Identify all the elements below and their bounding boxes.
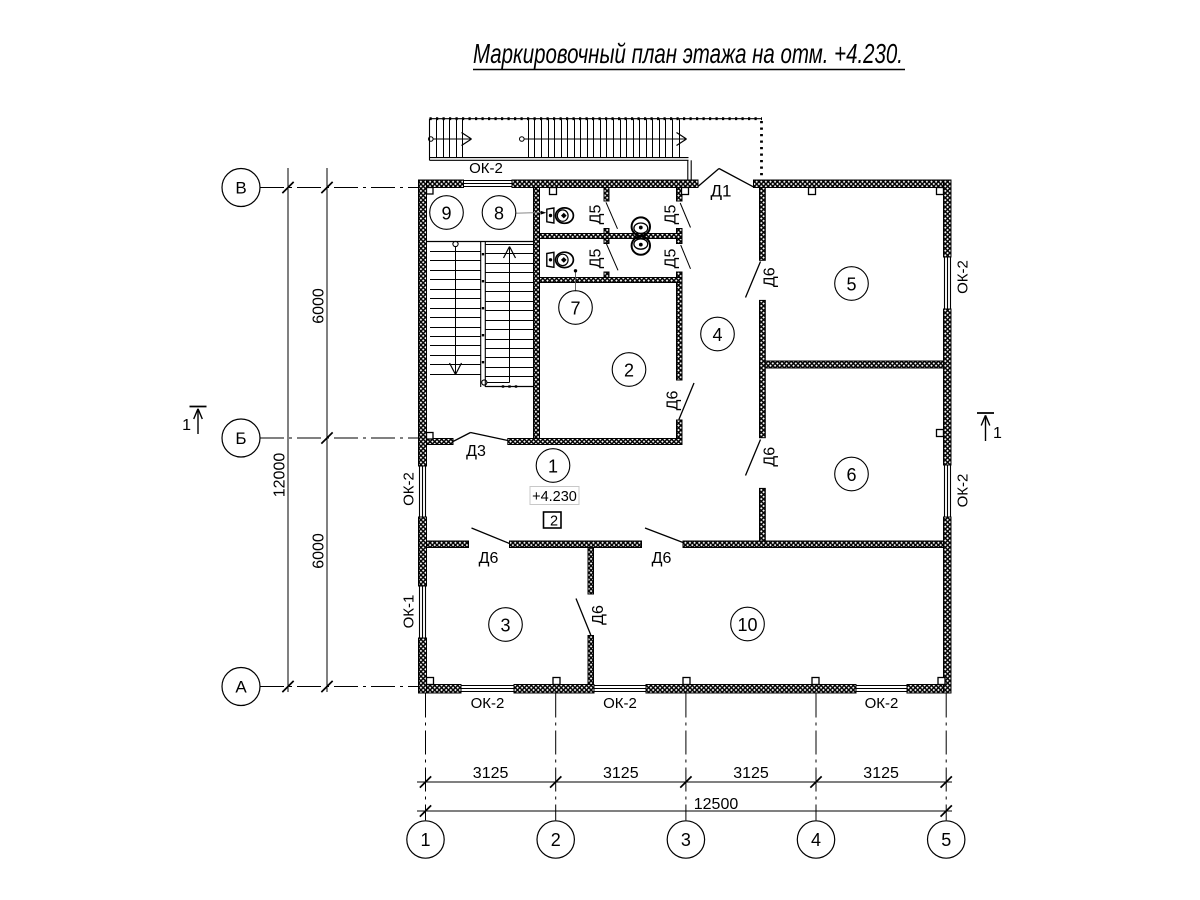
svg-text:Маркировочный план этажа на от: Маркировочный план этажа на отм. +4.230. (473, 38, 903, 69)
svg-text:3: 3 (681, 830, 691, 850)
svg-text:10: 10 (737, 615, 757, 635)
svg-text:Д6: Д6 (762, 447, 779, 467)
svg-text:2: 2 (550, 513, 558, 529)
svg-text:6000: 6000 (311, 533, 328, 569)
svg-text:1: 1 (993, 425, 1002, 442)
svg-text:12000: 12000 (272, 453, 289, 498)
svg-text:3125: 3125 (733, 765, 769, 782)
svg-text:ОК-2: ОК-2 (400, 472, 417, 506)
svg-text:ОК-2: ОК-2 (865, 695, 899, 712)
svg-text:Д6: Д6 (479, 550, 499, 567)
svg-text:1: 1 (420, 830, 430, 850)
svg-text:6000: 6000 (311, 288, 328, 324)
svg-text:3: 3 (500, 615, 510, 635)
svg-text:5: 5 (941, 830, 951, 850)
svg-text:ОК-2: ОК-2 (603, 695, 637, 712)
svg-text:Д5: Д5 (663, 249, 680, 269)
svg-text:ОК-2: ОК-2 (954, 474, 971, 508)
svg-text:Д6: Д6 (652, 550, 672, 567)
svg-text:4: 4 (712, 325, 722, 345)
svg-text:ОК-1: ОК-1 (400, 595, 417, 629)
svg-text:1: 1 (548, 456, 558, 476)
svg-text:1: 1 (182, 417, 191, 434)
svg-text:4: 4 (811, 830, 821, 850)
svg-text:В: В (235, 179, 246, 198)
svg-text:12500: 12500 (694, 796, 739, 813)
svg-text:Д3: Д3 (466, 443, 486, 460)
svg-text:7: 7 (570, 298, 580, 318)
svg-text:ОК-2: ОК-2 (471, 695, 505, 712)
svg-text:3125: 3125 (603, 765, 639, 782)
svg-text:Д5: Д5 (588, 205, 605, 225)
svg-text:ОК-2: ОК-2 (954, 260, 971, 294)
svg-text:Д1: Д1 (711, 182, 732, 201)
svg-text:2: 2 (624, 360, 634, 380)
svg-text:8: 8 (494, 203, 504, 223)
svg-text:9: 9 (441, 203, 451, 223)
svg-text:Д6: Д6 (590, 605, 607, 625)
svg-text:2: 2 (551, 830, 561, 850)
svg-text:+4.230: +4.230 (532, 489, 577, 505)
svg-text:ОК-2: ОК-2 (469, 160, 503, 177)
svg-text:5: 5 (846, 274, 856, 294)
svg-text:6: 6 (846, 465, 856, 485)
svg-text:А: А (235, 678, 247, 697)
svg-text:Д5: Д5 (588, 249, 605, 269)
svg-text:Д6: Д6 (762, 267, 779, 287)
svg-text:Б: Б (235, 429, 246, 448)
svg-text:3125: 3125 (473, 765, 509, 782)
svg-text:Д5: Д5 (663, 205, 680, 225)
svg-text:Д6: Д6 (665, 391, 682, 411)
svg-text:3125: 3125 (863, 765, 899, 782)
